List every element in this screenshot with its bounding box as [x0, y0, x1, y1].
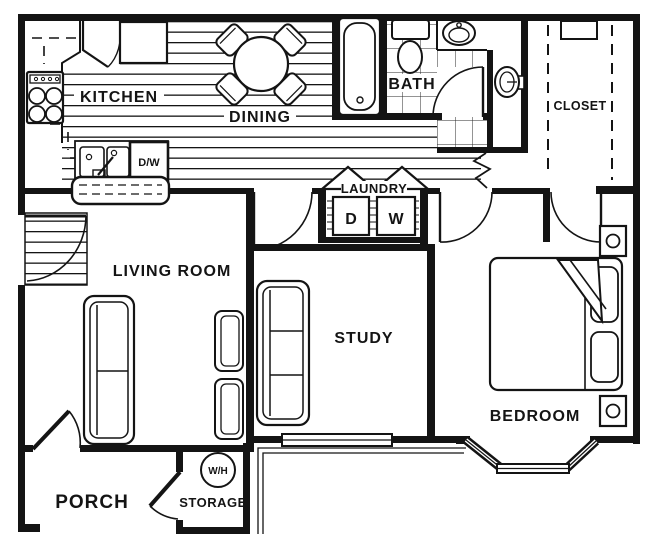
living-room: LIVING ROOM — [25, 213, 243, 449]
refrigerator — [120, 22, 167, 63]
bedroom-label: BEDROOM — [490, 408, 581, 425]
dining-label: DINING — [229, 109, 291, 126]
dining-table — [234, 37, 288, 91]
armchair-1 — [215, 311, 243, 371]
nightstand-1 — [600, 226, 626, 256]
laundry-label: LAUNDRY — [341, 181, 408, 196]
storage-door — [150, 472, 180, 519]
porch-door — [33, 411, 80, 449]
study-nook-door — [254, 192, 312, 250]
stove — [27, 72, 63, 123]
dryer-label: D — [345, 211, 357, 228]
bath-sink — [437, 21, 487, 50]
closet: CLOSET — [548, 21, 612, 180]
bay-window — [466, 440, 596, 474]
dishwasher: D/W — [130, 142, 168, 181]
study: STUDY — [257, 281, 394, 446]
water-heater: W/H — [201, 453, 235, 487]
nightstand-2 — [600, 396, 626, 426]
bar-counter — [72, 177, 169, 204]
floor-plan: D/W KITCHEN DINING — [0, 0, 650, 534]
porch: PORCH — [55, 492, 129, 513]
floor-plan-canvas: D/W KITCHEN DINING — [0, 0, 650, 534]
dining: DINING — [214, 22, 307, 126]
pedestal-sink — [495, 67, 524, 97]
entry-door — [25, 213, 87, 285]
bath-door — [433, 67, 483, 117]
patio-outline — [258, 448, 466, 534]
pillow-2 — [591, 332, 618, 382]
storage-label: STORAGE — [179, 495, 247, 510]
living-room-label: LIVING ROOM — [113, 263, 232, 280]
armchair-2 — [215, 379, 243, 439]
porch-label: PORCH — [55, 492, 129, 513]
closet-label: CLOSET — [553, 99, 606, 113]
hall-door — [440, 192, 492, 242]
bedroom: BEDROOM — [258, 226, 626, 534]
study-sofa — [257, 281, 309, 425]
kitchen-label: KITCHEN — [80, 89, 158, 106]
bathtub — [339, 18, 380, 115]
study-label: STUDY — [334, 330, 393, 347]
storage: W/H STORAGE — [150, 453, 247, 519]
study-window — [282, 434, 392, 446]
sofa — [84, 296, 134, 444]
closet-shelf — [561, 21, 597, 39]
bed — [490, 258, 622, 390]
bedroom-door — [551, 192, 601, 242]
washer-label: W — [388, 211, 404, 228]
dishwasher-label: D/W — [138, 157, 160, 169]
bath-label: BATH — [388, 76, 435, 93]
water-heater-label: W/H — [208, 466, 227, 477]
kitchen-cabinet-nook — [62, 21, 120, 68]
